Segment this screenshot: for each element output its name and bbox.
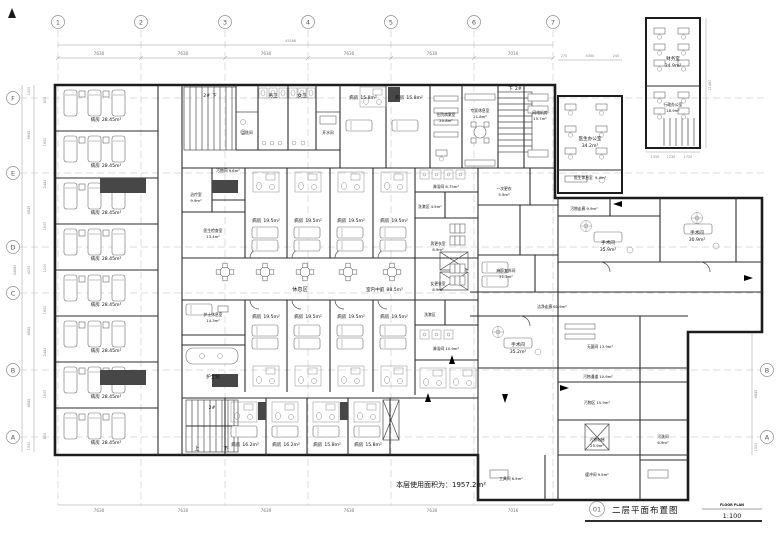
room-label-ward162-1: 病房16.2m² xyxy=(231,441,259,448)
svg-text:3: 3 xyxy=(223,19,227,27)
room-label-network: 网络机房15.7m² xyxy=(532,110,547,121)
svg-text:6845: 6845 xyxy=(27,327,31,336)
room-label-washzone2: 洗漱区 xyxy=(424,312,436,317)
room-label-ward28-5: 病房28.45m² xyxy=(91,301,122,308)
room-label-tool: 工具间6.9m² xyxy=(499,476,523,481)
room-label-change-once: 一次更衣5.9m² xyxy=(496,186,511,197)
room-label-ward28-1: 病房28.45m² xyxy=(91,116,122,123)
stair3-up-label: 上 xyxy=(194,444,199,452)
walls-layer xyxy=(55,18,762,500)
svg-text:6845: 6845 xyxy=(27,206,31,215)
svg-text:7630: 7630 xyxy=(94,51,105,56)
room-label-ward28-7: 病房28.45m² xyxy=(91,393,122,400)
svg-text:D: D xyxy=(10,244,15,252)
svg-text:2445: 2445 xyxy=(43,180,47,189)
svg-text:1600: 1600 xyxy=(43,138,47,147)
stair3-down-label: 下 xyxy=(223,445,228,452)
sheet-title: 二层平面布置图 xyxy=(612,505,679,516)
room-label-shower2: 淋浴间10.9m² xyxy=(433,346,460,351)
dim-left-subdims: 800 1600 2445 1600 1200 1600 2445 1600 8… xyxy=(43,97,47,439)
svg-text:11480: 11480 xyxy=(708,80,712,91)
room-label-buffer: 缓冲间9.9m² xyxy=(585,472,609,477)
svg-text:2445: 2445 xyxy=(43,348,47,357)
svg-text:6845: 6845 xyxy=(754,390,758,399)
svg-text:1600: 1600 xyxy=(43,222,47,231)
room-label-ward195-l1: 病房19.5m² xyxy=(252,313,280,320)
room-label-ward195-l3: 病房19.5m² xyxy=(337,313,365,320)
room-label-ward158-t1: 病房15.8m² xyxy=(349,94,377,101)
room-label-expert: 专家休息室21.8m² xyxy=(471,108,490,119)
svg-text:F: F xyxy=(11,95,15,103)
room-label-soiled-room: 污物间9.6m² xyxy=(216,168,240,173)
room-label-doctor-lounge: 医生休息室9.4m² xyxy=(574,175,607,180)
room-label-washroom: 盥洗间 xyxy=(241,130,253,135)
room-label-exam: 医生检查室13.4m² xyxy=(204,228,223,239)
room-label-ward195-l2: 病房19.5m² xyxy=(294,313,322,320)
svg-text:7630: 7630 xyxy=(344,51,355,56)
svg-text:1500: 1500 xyxy=(27,87,31,96)
room-label-admin: 行政办公室18.9m² xyxy=(664,102,683,113)
room-label-ward28-4: 病房28.45m² xyxy=(91,255,122,262)
svg-text:270: 270 xyxy=(561,54,567,58)
svg-text:7630: 7630 xyxy=(261,51,272,56)
stair-2 xyxy=(498,92,532,152)
svg-text:240: 240 xyxy=(613,54,619,58)
room-label-ward162-2: 病房16.2m² xyxy=(272,441,300,448)
svg-text:B: B xyxy=(11,367,15,375)
svg-text:1350: 1350 xyxy=(651,155,660,159)
svg-text:5: 5 xyxy=(389,19,393,27)
svg-text:1: 1 xyxy=(56,19,60,27)
svg-text:1500: 1500 xyxy=(27,442,31,451)
svg-text:E: E xyxy=(11,170,15,178)
room-label-ward28-3: 病房28.45m² xyxy=(91,209,122,216)
svg-text:A: A xyxy=(765,434,770,442)
room-label-ward195-u1: 病房19.5m² xyxy=(252,217,280,224)
room-label-ward28-6: 病房28.45m² xyxy=(91,347,122,354)
svg-text:1600: 1600 xyxy=(43,306,47,315)
grid-bubbles-right: B A xyxy=(761,364,774,444)
stair-annex xyxy=(664,118,694,146)
svg-text:C: C xyxy=(11,290,16,298)
room-label-or2: 手术间30.9m² xyxy=(689,229,706,243)
svg-text:7630: 7630 xyxy=(344,508,355,513)
svg-text:7016: 7016 xyxy=(508,51,519,56)
room-label-ward195-u4: 病房19.5m² xyxy=(380,217,408,224)
svg-text:7630: 7630 xyxy=(427,51,438,56)
room-label-shower1: 淋浴间6.75m² xyxy=(433,184,460,189)
svg-text:6845: 6845 xyxy=(27,399,31,408)
svg-text:7630: 7630 xyxy=(94,508,105,513)
stair2-label: 下2# xyxy=(508,86,522,92)
room-label-rest-area: 休息区 xyxy=(292,285,308,293)
sheet-subtitle: FLOOR PLAN xyxy=(720,503,744,507)
room-label-soiled-corr2: 污物通道10.9m² xyxy=(583,374,613,379)
sheet-number: 01 xyxy=(593,506,601,514)
room-label-ward158-b2: 病房15.8m² xyxy=(354,441,382,448)
room-label-nurse-lounge: 护士休息室14.3m² xyxy=(204,312,223,323)
room-label-records: 住院病案室20.8m² xyxy=(437,112,456,123)
floor-area-note: 本层使用面积为：1957.2m² xyxy=(396,480,486,489)
svg-text:6845: 6845 xyxy=(27,131,31,140)
title-block: 01 二层平面布置图 FLOOR PLAN 1:100 xyxy=(585,502,762,522)
room-label-ward158-t2: 病房15.8m² xyxy=(395,94,423,101)
svg-text:1600: 1600 xyxy=(43,390,47,399)
svg-text:1230: 1230 xyxy=(667,155,676,159)
north-arrow-icon xyxy=(8,8,16,18)
svg-text:7630: 7630 xyxy=(178,51,189,56)
room-label-or1: 手术间35.9m² xyxy=(600,239,617,253)
room-label-ward195-u2: 病房19.5m² xyxy=(294,217,322,224)
room-label-washzone1: 洗漱区4.9m² xyxy=(418,204,442,209)
svg-text:7630: 7630 xyxy=(427,508,438,513)
svg-text:1200: 1200 xyxy=(43,264,47,273)
svg-text:45166: 45166 xyxy=(285,39,296,43)
svg-text:800: 800 xyxy=(43,433,47,439)
room-label-ward195-u3: 病房19.5m² xyxy=(337,217,365,224)
svg-text:4300: 4300 xyxy=(586,54,595,58)
grid-bubbles-top: 1 2 3 4 5 6 7 xyxy=(52,16,560,29)
room-label-doctor-office: 医生办公室34.2m² xyxy=(579,135,602,149)
room-labels: 病房28.45m² 病房28.45m² 病房28.45m² 病房28.45m² … xyxy=(91,55,706,481)
svg-text:7630: 7630 xyxy=(261,508,272,513)
svg-text:A: A xyxy=(11,434,16,442)
svg-text:34580: 34580 xyxy=(13,265,17,276)
room-label-change-m: 男更衣室8.9m² xyxy=(430,241,445,252)
room-label-wc-m: 男卫 xyxy=(268,93,278,99)
room-label-ward195-l4: 病房19.5m² xyxy=(380,313,408,320)
svg-text:1500: 1500 xyxy=(754,443,758,452)
svg-text:6: 6 xyxy=(472,19,476,27)
svg-text:B: B xyxy=(765,367,769,375)
stair3-number: 2# xyxy=(209,405,216,411)
room-label-wc-f: 女卫 xyxy=(297,92,307,99)
room-label-atrium: 室内中庭88.5m² xyxy=(366,286,403,293)
room-label-nurse-station: 护士站 xyxy=(206,373,220,380)
room-label-soiled-wash: 污洗间6.9m² xyxy=(657,434,669,445)
room-label-soiled-zone: 污物区15.9m² xyxy=(584,400,611,405)
room-label-soiled-lift: 污物电梯25.9m² xyxy=(589,437,604,448)
svg-text:7016: 7016 xyxy=(508,508,519,513)
sheet-scale: 1:100 xyxy=(723,512,742,520)
floor-plan-sheet: 1 2 3 4 5 6 7 F E D C B A B A 7630 7630 … xyxy=(0,0,780,540)
room-label-hotwater: 开水间 xyxy=(322,130,334,135)
svg-text:7: 7 xyxy=(551,19,555,27)
floor-plan-drawing: 1 2 3 4 5 6 7 F E D C B A B A 7630 7630 … xyxy=(0,0,780,540)
room-label-ward158-b1: 病房15.8m² xyxy=(313,441,341,448)
svg-text:1720: 1720 xyxy=(684,155,693,159)
room-label-ward28-2: 病房28.45m² xyxy=(91,162,122,169)
room-label-soiled-corr1: 污物走廊9.9m² xyxy=(570,206,598,211)
room-label-change-f: 女更衣室8.9m² xyxy=(430,281,445,292)
room-label-anesthesia: 麻醉复苏间21.2m² xyxy=(497,268,516,279)
room-label-ward28-8: 病房28.45m² xyxy=(91,439,122,446)
room-label-clean-corr: 洁净走廊61.9m² xyxy=(537,304,567,309)
svg-text:4: 4 xyxy=(306,19,310,27)
svg-text:7630: 7630 xyxy=(178,508,189,513)
svg-text:4200: 4200 xyxy=(27,266,31,275)
room-label-treatment: 治疗室9.9m² xyxy=(190,192,202,203)
svg-text:2: 2 xyxy=(139,19,143,27)
svg-text:800: 800 xyxy=(43,97,47,103)
room-label-sterile: 无菌间13.9m² xyxy=(587,344,614,349)
